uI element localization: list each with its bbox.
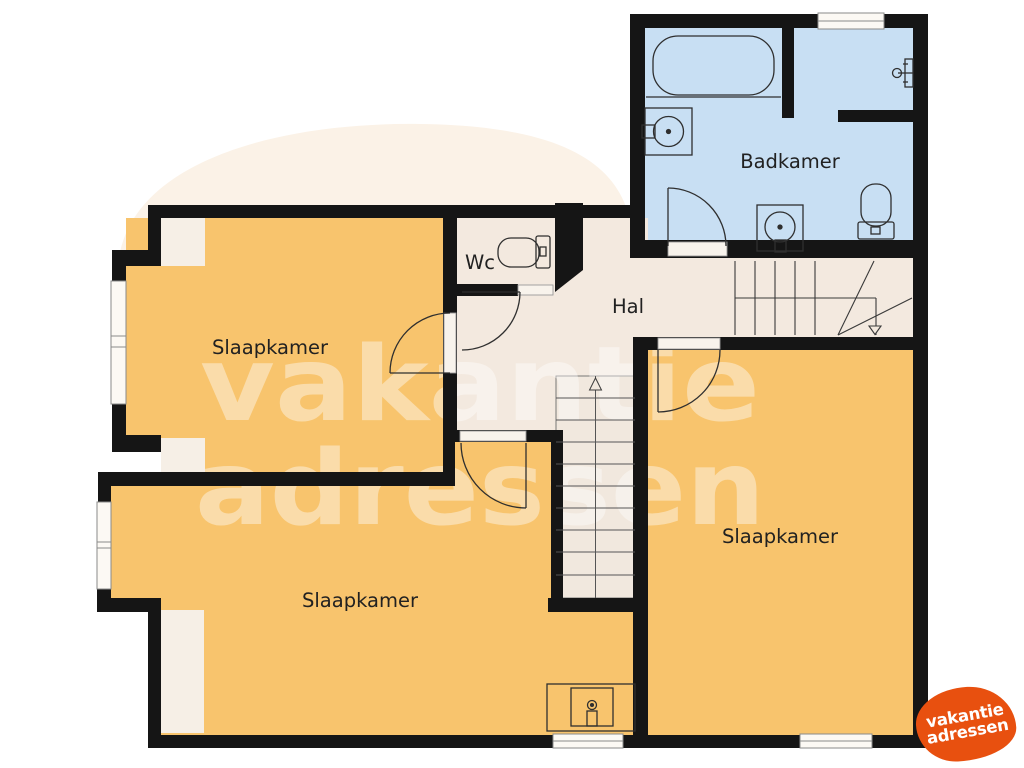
label-wc: Wc — [465, 251, 495, 274]
closet-strip — [160, 610, 204, 733]
label-slaapkamer-bl: Slaapkamer — [302, 589, 419, 612]
window-left-lower — [97, 502, 111, 589]
threshold-slaapkamer-tl — [444, 313, 456, 373]
label-slaapkamer-tl: Slaapkamer — [212, 336, 329, 359]
floorplan-drawing: vakantie adressen — [0, 0, 1024, 768]
label-hal: Hal — [612, 295, 644, 318]
badkamer-floor — [645, 28, 913, 243]
threshold-badkamer — [668, 242, 727, 256]
threshold-wc — [518, 285, 553, 295]
outside-gap — [126, 452, 161, 472]
label-badkamer: Badkamer — [740, 150, 841, 173]
floorplan-page: vakantie adressen — [0, 0, 1024, 768]
window-left-upper — [111, 281, 126, 404]
vakantieadressen-logo-text: vakantie adressen — [923, 701, 1010, 746]
closet-notch-top — [161, 218, 205, 266]
threshold-slaapkamer-bl — [460, 431, 526, 441]
threshold-slaapkamer-r — [658, 338, 720, 349]
label-slaapkamer-r: Slaapkamer — [722, 525, 839, 548]
slaapkamer-bl-floor-b — [160, 612, 633, 735]
